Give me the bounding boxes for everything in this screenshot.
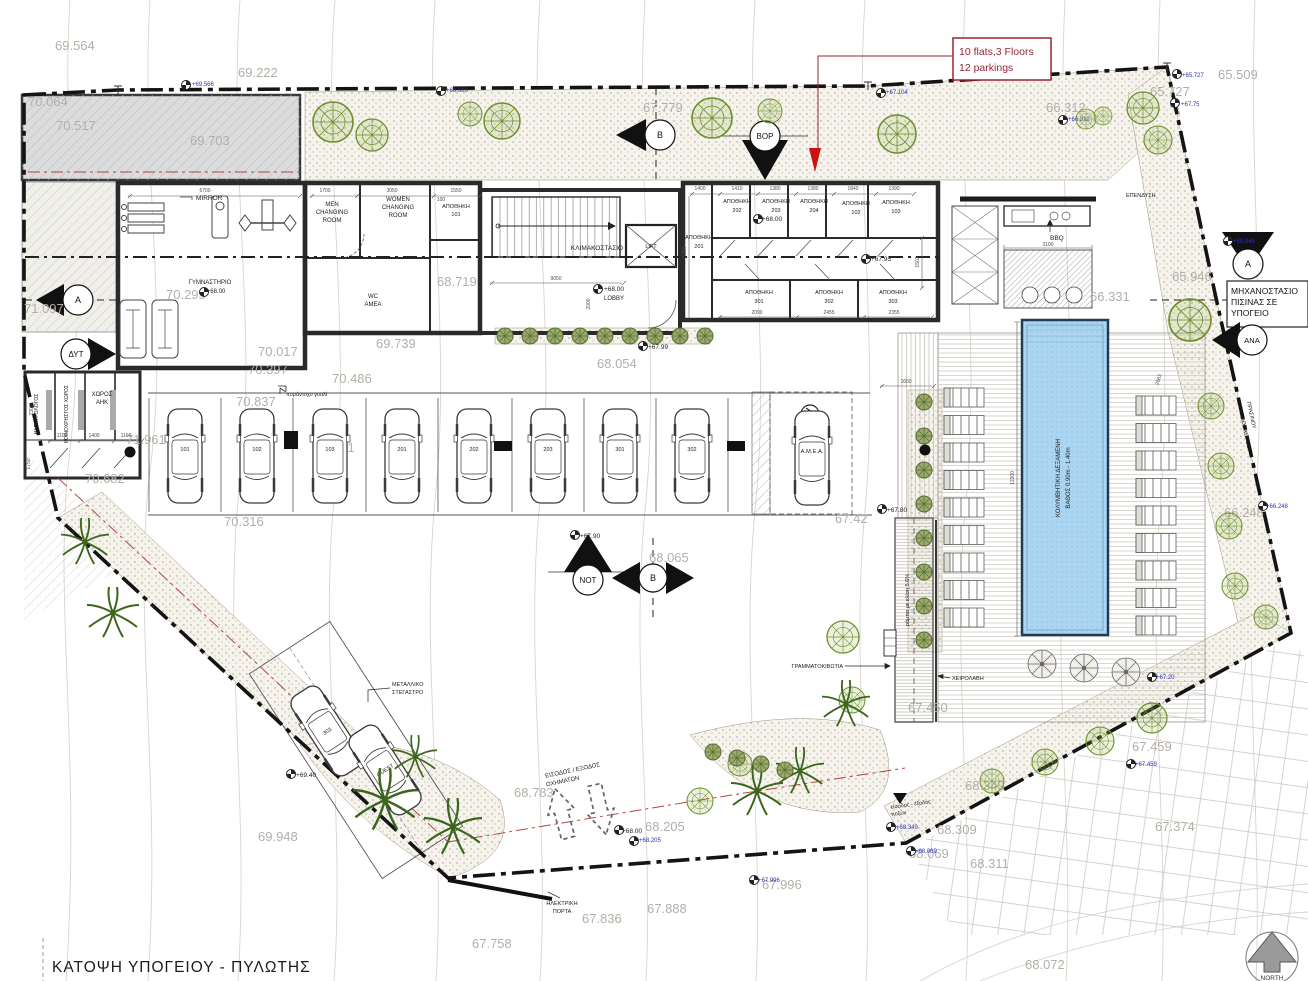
bush-icon bbox=[916, 598, 932, 614]
tree-icon bbox=[692, 98, 732, 138]
parking-number: 201 bbox=[397, 447, 406, 453]
umbrella-icon bbox=[1070, 654, 1098, 682]
plan-label: WC bbox=[368, 294, 379, 300]
svg-text:B: B bbox=[657, 130, 663, 140]
plan-label: 1700 bbox=[319, 188, 330, 194]
plan-label: ΚΛΙΜΑΚΟΣΤΑΣΙΟ bbox=[571, 245, 623, 252]
sun-lounger bbox=[944, 416, 984, 435]
tree-icon bbox=[1032, 749, 1058, 775]
plan-label: 71.961 bbox=[126, 432, 166, 447]
bush-icon bbox=[916, 530, 932, 546]
bush-icon bbox=[547, 328, 563, 344]
mailboxes bbox=[884, 630, 896, 656]
plan-label: 68.065 bbox=[649, 550, 689, 565]
plan-label: 70.017 bbox=[258, 344, 298, 359]
plan-label: 66.331 bbox=[1090, 289, 1130, 304]
sun-lounger bbox=[1136, 396, 1176, 415]
plan-label: 5250 bbox=[682, 246, 688, 257]
sun-lounger bbox=[944, 443, 984, 462]
sun-lounger bbox=[1136, 506, 1176, 525]
plan-label: +65.946 bbox=[1233, 239, 1256, 245]
plan-label: 9050 bbox=[550, 276, 561, 282]
plan-label: ΓΥΜΝΑΣΤΗΡΙΟ bbox=[189, 280, 232, 286]
bush-icon bbox=[916, 428, 932, 444]
column bbox=[494, 441, 512, 451]
plan-label: 68.072 bbox=[1025, 957, 1065, 972]
plan-label: 69.948 bbox=[258, 829, 298, 844]
plan-label: ΑΠΟΘΗΚΗ bbox=[745, 290, 773, 296]
bush-icon bbox=[916, 394, 932, 410]
plan-label: ΑΗΚ bbox=[96, 400, 108, 406]
plan-label: 67.42 bbox=[835, 511, 868, 526]
utility-annex bbox=[25, 372, 140, 478]
parking-number: 103 bbox=[325, 447, 334, 453]
plan-label: 1380 bbox=[807, 186, 818, 192]
sun-lounger bbox=[944, 388, 984, 407]
plan-label: 65.946 bbox=[1172, 269, 1212, 284]
tree-icon bbox=[1216, 513, 1242, 539]
plan-label: 70.316 bbox=[224, 514, 264, 529]
plan-label: CHANGING bbox=[316, 210, 349, 216]
sun-lounger bbox=[1136, 424, 1176, 443]
bush-icon bbox=[729, 750, 745, 766]
survey-point-icon bbox=[907, 847, 916, 856]
tree-icon bbox=[827, 621, 859, 653]
column bbox=[125, 447, 136, 458]
parked-car bbox=[672, 409, 712, 503]
plan-label: 69.739 bbox=[376, 336, 416, 351]
plan-label: CHANGING bbox=[382, 205, 415, 211]
survey-point-icon bbox=[615, 826, 624, 835]
title-block: ΚΑΤΟΨΗ ΥΠΟΓΕΙΟΥ - ΠΥΛΩΤΗΣ bbox=[43, 938, 311, 981]
svg-text:ΔΥΤ: ΔΥΤ bbox=[69, 350, 84, 359]
tree-icon bbox=[1198, 393, 1224, 419]
survey-point-icon bbox=[182, 81, 191, 90]
tree-icon bbox=[1076, 109, 1096, 129]
umbrella-icon bbox=[1112, 658, 1140, 686]
parking-number: 203 bbox=[543, 447, 552, 453]
plan-label: 1100 bbox=[121, 433, 132, 439]
tree-icon bbox=[484, 103, 520, 139]
survey-point-icon bbox=[200, 288, 209, 297]
bush-icon bbox=[647, 328, 663, 344]
plan-label: 70.397 bbox=[248, 362, 288, 377]
machine-room-line1: ΜΗΧΑΝΟΣΤΑΣΙΟ bbox=[1231, 286, 1298, 296]
svg-text:A: A bbox=[75, 295, 81, 305]
plan-label: 3050 bbox=[386, 188, 397, 194]
plan-label: +67.90 bbox=[580, 533, 600, 540]
bush-icon bbox=[697, 328, 713, 344]
plan-label: +68.00 bbox=[604, 286, 624, 293]
north-arrow-icon: NORTH bbox=[1246, 932, 1298, 981]
tree-icon bbox=[1222, 573, 1248, 599]
sun-lounger bbox=[1136, 589, 1176, 608]
plan-label: 303 bbox=[888, 299, 897, 305]
plan-label: 204 bbox=[809, 208, 818, 214]
plan-label: 301 bbox=[754, 299, 763, 305]
plan-label: 68.205 bbox=[645, 819, 685, 834]
plan-label: 101 bbox=[451, 212, 460, 218]
plan-label: 68.719 bbox=[437, 274, 477, 289]
plan-label: ΑΠΟΘΗΚΗ bbox=[815, 290, 843, 296]
survey-point-icon bbox=[1171, 99, 1180, 108]
parking-number: 302 bbox=[687, 447, 696, 453]
parked-car bbox=[237, 409, 277, 503]
tree-icon bbox=[458, 102, 482, 126]
tree-icon bbox=[1254, 605, 1278, 629]
survey-point-icon bbox=[754, 215, 763, 224]
annotation-line2: 12 parkings bbox=[959, 62, 1013, 74]
plan-label: AMEA bbox=[364, 302, 381, 308]
plan-label: 69.703 bbox=[190, 133, 230, 148]
tree-icon bbox=[313, 102, 353, 142]
plan-label: 67.459 bbox=[1132, 739, 1172, 754]
sun-lounger bbox=[944, 581, 984, 600]
plan-label: 1410 bbox=[731, 186, 742, 192]
machine-room-line2: ΠΙΣΙΝΑΣ ΣΕ bbox=[1231, 297, 1278, 307]
survey-point-icon bbox=[571, 531, 580, 540]
plan-label: +68.349 bbox=[896, 825, 919, 831]
plan-label: ΒΑΘΟΣ 0.90m - 1.40m bbox=[1066, 447, 1072, 508]
plan-label: +66.248 bbox=[1266, 504, 1289, 510]
bush-icon bbox=[622, 328, 638, 344]
exit-arrow-icon bbox=[581, 782, 619, 838]
parking-number: 102 bbox=[252, 447, 261, 453]
plan-label: ΑΠΟΘΗΚΗ bbox=[762, 199, 790, 205]
bush-icon bbox=[572, 328, 588, 344]
plan-label: 70.486 bbox=[332, 371, 372, 386]
plan-label: 203 bbox=[771, 208, 780, 214]
plan-label: 70.682 bbox=[85, 471, 125, 486]
svg-text:B: B bbox=[650, 573, 656, 583]
svg-text:ΝΟΤ: ΝΟΤ bbox=[580, 576, 597, 585]
plan-label: +67.459 bbox=[1135, 762, 1158, 768]
sun-lounger bbox=[1136, 561, 1176, 580]
parked-car bbox=[310, 409, 350, 503]
survey-point-icon bbox=[630, 837, 639, 846]
sun-lounger bbox=[944, 608, 984, 627]
survey-point-icon bbox=[1148, 673, 1157, 682]
plan-label: 103 bbox=[891, 209, 900, 215]
survey-point-icon bbox=[1173, 70, 1182, 79]
sun-lounger bbox=[1136, 534, 1176, 553]
tree-icon bbox=[980, 769, 1004, 793]
plan-label: 2300 bbox=[29, 404, 35, 415]
plan-label: 70.517 bbox=[56, 118, 96, 133]
plan-label: 69.564 bbox=[55, 38, 95, 53]
plan-label: 1400 bbox=[694, 186, 705, 192]
plan-label: 67.450 bbox=[908, 700, 948, 715]
plan-label: ΕΠΕΝΔΥΣΗ bbox=[1126, 193, 1156, 199]
bush-icon bbox=[672, 328, 688, 344]
plan-label: +68.00 bbox=[207, 289, 226, 295]
bush-icon bbox=[916, 462, 932, 478]
survey-point-icon bbox=[1259, 502, 1268, 511]
plan-label: 100 bbox=[437, 197, 446, 203]
bush-icon bbox=[522, 328, 538, 344]
plan-label: 1550 bbox=[450, 188, 461, 194]
plan-label: ΧΕΙΡΟΛΑΒΗ bbox=[952, 676, 984, 682]
parked-car bbox=[600, 409, 640, 503]
survey-point-icon bbox=[437, 87, 446, 96]
parking-number: Α.Μ.Ε.Α. bbox=[801, 449, 824, 455]
page-title: ΚΑΤΟΨΗ ΥΠΟΓΕΙΟΥ - ΠΥΛΩΤΗΣ bbox=[52, 959, 311, 976]
plan-label: ΧΩΡΟΣ bbox=[92, 392, 113, 398]
tree-icon bbox=[1208, 453, 1234, 479]
plan-label: BBQ bbox=[1050, 235, 1064, 242]
plan-label: 3100 bbox=[1042, 242, 1053, 248]
plan-label: 67.779 bbox=[643, 100, 683, 115]
plan-label: ράμπα με κλίση 5.6% bbox=[904, 574, 911, 626]
plan-label: 2090 bbox=[751, 310, 762, 316]
tree-icon bbox=[356, 119, 388, 151]
survey-point-icon bbox=[594, 285, 603, 294]
sun-lounger bbox=[944, 553, 984, 572]
plan-label: +67.104 bbox=[886, 90, 909, 96]
plan-label: ΑΠΟΘΗΚΗ bbox=[685, 235, 713, 241]
floor-plan-canvas: 10 flats,3 Floors 12 parkings ΜΗΧΑΝΟΣΤΑΣ… bbox=[0, 0, 1308, 981]
plan-label: ROOM bbox=[323, 218, 342, 224]
plan-label: 2000 bbox=[586, 298, 592, 309]
parking-number: 301 bbox=[615, 447, 624, 453]
plan-label: LOBBY bbox=[604, 296, 624, 302]
survey-point-icon bbox=[877, 89, 886, 98]
bench-press bbox=[262, 200, 273, 230]
plan-label: 201 bbox=[694, 244, 703, 250]
plan-label: ΜΕΤΑΛΛΙΚΟ bbox=[392, 682, 424, 688]
plan-label: 68.054 bbox=[597, 356, 637, 371]
electric-gate bbox=[448, 880, 552, 899]
svg-text:ΒΟΡ: ΒΟΡ bbox=[757, 132, 774, 141]
plan-label: 1390 bbox=[888, 186, 899, 192]
survey-point-icon bbox=[878, 505, 887, 514]
sun-lounger bbox=[944, 498, 984, 517]
palm-tree-icon bbox=[87, 587, 139, 637]
umbrella-icon bbox=[1028, 650, 1056, 678]
plan-label: 67.758 bbox=[472, 936, 512, 951]
survey-point-icon bbox=[887, 823, 896, 832]
survey-point-icon bbox=[862, 255, 871, 264]
plan-label: +67.996 bbox=[758, 878, 781, 884]
column bbox=[284, 431, 298, 449]
sun-lounger bbox=[944, 471, 984, 490]
plan-label: 70.837 bbox=[236, 394, 276, 409]
plan-label: 67.888 bbox=[647, 901, 687, 916]
bush-icon bbox=[497, 328, 513, 344]
tree-icon bbox=[1144, 126, 1172, 154]
plan-label: ΑΠΟΘΗΚΗ bbox=[442, 204, 470, 210]
parked-car-amea bbox=[792, 411, 832, 505]
plan-label: WOMEN bbox=[386, 197, 410, 203]
survey-point-icon bbox=[1059, 116, 1068, 125]
plan-label: ΑΠΟΘΗΚΗ bbox=[882, 200, 910, 206]
north-arrow-label: NORTH bbox=[1261, 975, 1284, 981]
plan-label: +68.205 bbox=[639, 838, 662, 844]
plan-label: LIFT bbox=[645, 244, 657, 250]
plan-label: ΣΤΕΓΑΣΤΡΟ bbox=[392, 690, 424, 696]
plan-label: +67.99 bbox=[648, 344, 668, 351]
plan-label: 1650 bbox=[900, 379, 911, 385]
plan-label: 12200 bbox=[1010, 471, 1016, 485]
plan-label: 6700 bbox=[199, 188, 210, 194]
plan-label: 1750 bbox=[26, 458, 32, 469]
plan-label: 65.727 bbox=[1150, 84, 1190, 99]
plan-label: 202 bbox=[732, 208, 741, 214]
plan-label: ΓΡΑΜΜΑΤΟΚΙΒΩΤΙΑ bbox=[792, 664, 844, 670]
bush-icon bbox=[753, 756, 769, 772]
plan-label: 71.097 bbox=[24, 301, 64, 316]
site-plan-drawing: 10 flats,3 Floors 12 parkings ΜΗΧΑΝΟΣΤΑΣ… bbox=[0, 0, 1308, 981]
plan-label: ΗΛΕΚΤΡΙΚΗ bbox=[546, 901, 577, 907]
bush-icon bbox=[916, 564, 932, 580]
machine-room-label: ΜΗΧΑΝΟΣΤΑΣΙΟ ΠΙΣΙΝΑΣ ΣΕ ΥΠΟΓΕΙΟ bbox=[1227, 281, 1308, 327]
plan-label: +67.80 bbox=[887, 507, 907, 514]
tree-icon bbox=[878, 115, 916, 153]
tree-icon bbox=[758, 99, 782, 123]
plan-label: ΠΟΡΤΑ bbox=[553, 909, 572, 915]
survey-point-icon bbox=[287, 770, 296, 779]
bush-icon bbox=[916, 496, 932, 512]
plan-label: +67.95 bbox=[871, 256, 891, 263]
svg-text:A: A bbox=[1245, 259, 1251, 269]
plan-label: MIRROR bbox=[196, 195, 223, 202]
plan-label: 302 bbox=[824, 299, 833, 305]
sun-lounger bbox=[944, 526, 984, 545]
sun-lounger bbox=[1136, 616, 1176, 635]
plan-label: +68.603 bbox=[446, 88, 469, 94]
svg-text:ΑΝΑ: ΑΝΑ bbox=[1244, 336, 1259, 345]
plan-label: 67.374 bbox=[1155, 819, 1195, 834]
tree-icon bbox=[1094, 107, 1112, 125]
plan-label: 102 bbox=[851, 210, 860, 216]
survey-point-icon bbox=[1127, 760, 1136, 769]
parking-number: 101 bbox=[180, 447, 189, 453]
plan-label: +67.75 bbox=[1181, 102, 1200, 108]
survey-point-icon bbox=[639, 342, 648, 351]
plan-label: ΚΟΛΥΜΒΗΤΙΚΗ ΔΕΞΑΜΕΝΗ bbox=[1056, 439, 1062, 517]
plan-label: +69.566 bbox=[192, 82, 215, 88]
plan-label: 68.309 bbox=[937, 822, 977, 837]
tree-icon bbox=[1169, 299, 1211, 341]
parked-car bbox=[528, 409, 568, 503]
bbq-counter bbox=[1004, 206, 1090, 226]
bush-icon bbox=[916, 632, 932, 648]
parking-number: 202 bbox=[469, 447, 478, 453]
plan-label: +68.00 bbox=[622, 828, 642, 835]
bbq-area bbox=[952, 199, 1096, 308]
plan-label: πυράντοχο γυαλί bbox=[286, 391, 328, 398]
parked-car bbox=[382, 409, 422, 503]
plan-label: +68.069 bbox=[915, 849, 938, 855]
marker-south: ΝΟΤ bbox=[548, 534, 628, 595]
sun-lounger bbox=[1136, 451, 1176, 470]
annotation-line1: 10 flats,3 Floors bbox=[959, 46, 1034, 58]
plan-label: 70.064 bbox=[28, 94, 68, 109]
plan-label: 1100 bbox=[57, 433, 68, 439]
plan-label: 1840 bbox=[847, 186, 858, 192]
marker-west: ΔΥΤ bbox=[61, 338, 116, 370]
tree-icon bbox=[1086, 727, 1114, 755]
plan-label: ΑΠΟΘΗΚΗ bbox=[842, 201, 870, 207]
bush-icon bbox=[777, 762, 793, 778]
plan-label: 2355 bbox=[888, 310, 899, 316]
plan-label: 1380 bbox=[769, 186, 780, 192]
parked-car bbox=[454, 409, 494, 503]
tree-icon bbox=[1137, 703, 1167, 733]
gym-equipment bbox=[120, 196, 296, 358]
tree-icon bbox=[687, 788, 713, 814]
plan-label: 1503 bbox=[915, 256, 921, 267]
bush-icon bbox=[597, 328, 613, 344]
plan-label: ΑΠΟΘΗΚΗ bbox=[723, 199, 751, 205]
plan-label: 68.311 bbox=[970, 856, 1009, 871]
plan-label: 1400 bbox=[88, 433, 99, 439]
plan-label: ΑΠΟΘΗΚΗ bbox=[879, 290, 907, 296]
column bbox=[727, 441, 745, 451]
plan-label: 67.836 bbox=[582, 911, 622, 926]
bush-icon bbox=[705, 744, 721, 760]
parked-car bbox=[165, 409, 205, 503]
plan-label: 65.509 bbox=[1218, 67, 1258, 82]
survey-point-icon bbox=[750, 876, 759, 885]
tree-icon bbox=[1127, 92, 1159, 124]
plan-label: ΑΠΟΘΗΚΗ bbox=[800, 199, 828, 205]
column bbox=[920, 445, 931, 456]
plan-label: +68.00 bbox=[762, 216, 782, 223]
plan-label: +69.40 bbox=[296, 772, 316, 779]
sun-lounger bbox=[1136, 479, 1176, 498]
plan-label: MEN bbox=[325, 202, 338, 208]
plan-label: 2455 bbox=[823, 310, 834, 316]
machine-room-line3: ΥΠΟΓΕΙΟ bbox=[1231, 308, 1269, 318]
plan-label: 69.222 bbox=[238, 65, 278, 80]
plan-label: +67.20 bbox=[1156, 675, 1175, 681]
plan-label: ROOM bbox=[389, 213, 408, 219]
survey-point-icon bbox=[1224, 237, 1233, 246]
plan-label: +65.727 bbox=[1182, 73, 1205, 79]
marker-section-b-mid: B bbox=[612, 562, 694, 594]
